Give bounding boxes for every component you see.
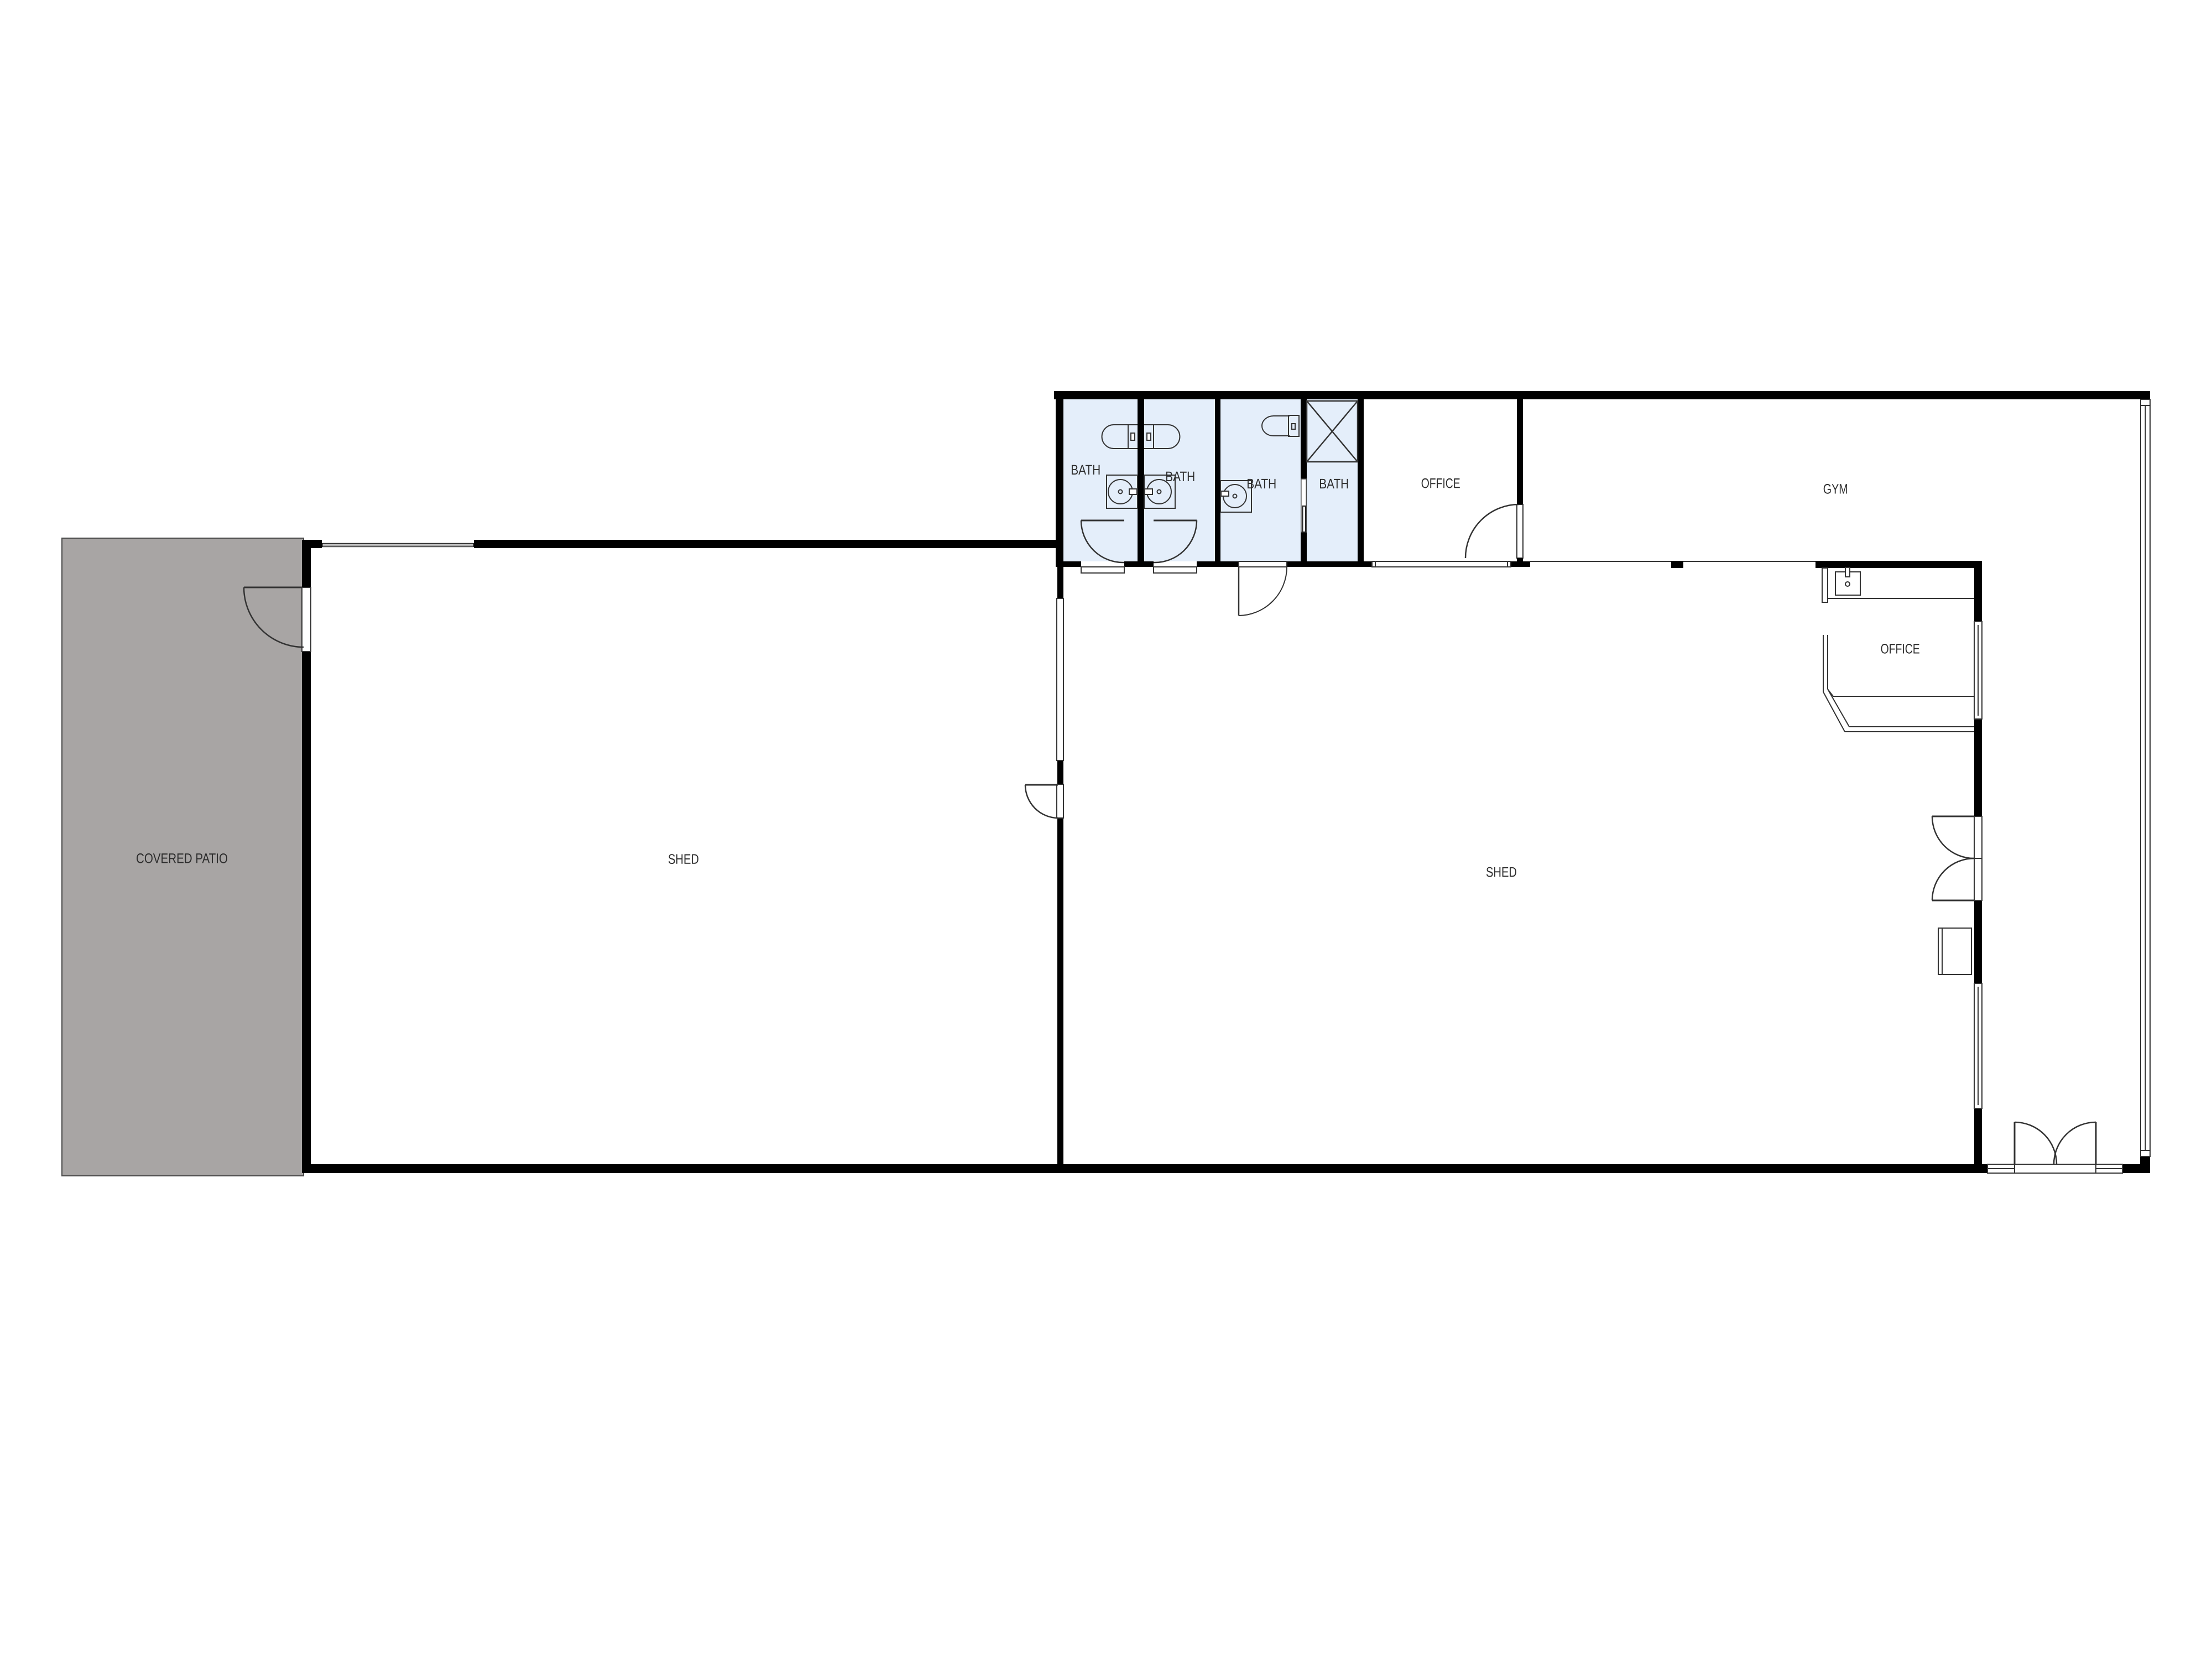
svg-text:SHED: SHED [668, 852, 699, 867]
svg-text:BATH: BATH [1319, 476, 1349, 492]
svg-text:SHED: SHED [1486, 864, 1517, 880]
svg-text:BATH: BATH [1246, 476, 1276, 492]
svg-text:OFFICE: OFFICE [1421, 476, 1460, 491]
svg-text:COVERED PATIO: COVERED PATIO [136, 851, 228, 866]
svg-text:OFFICE: OFFICE [1881, 641, 1920, 657]
svg-text:BATH: BATH [1165, 469, 1195, 484]
svg-text:GYM: GYM [1823, 481, 1848, 497]
svg-text:BATH: BATH [1071, 462, 1100, 478]
